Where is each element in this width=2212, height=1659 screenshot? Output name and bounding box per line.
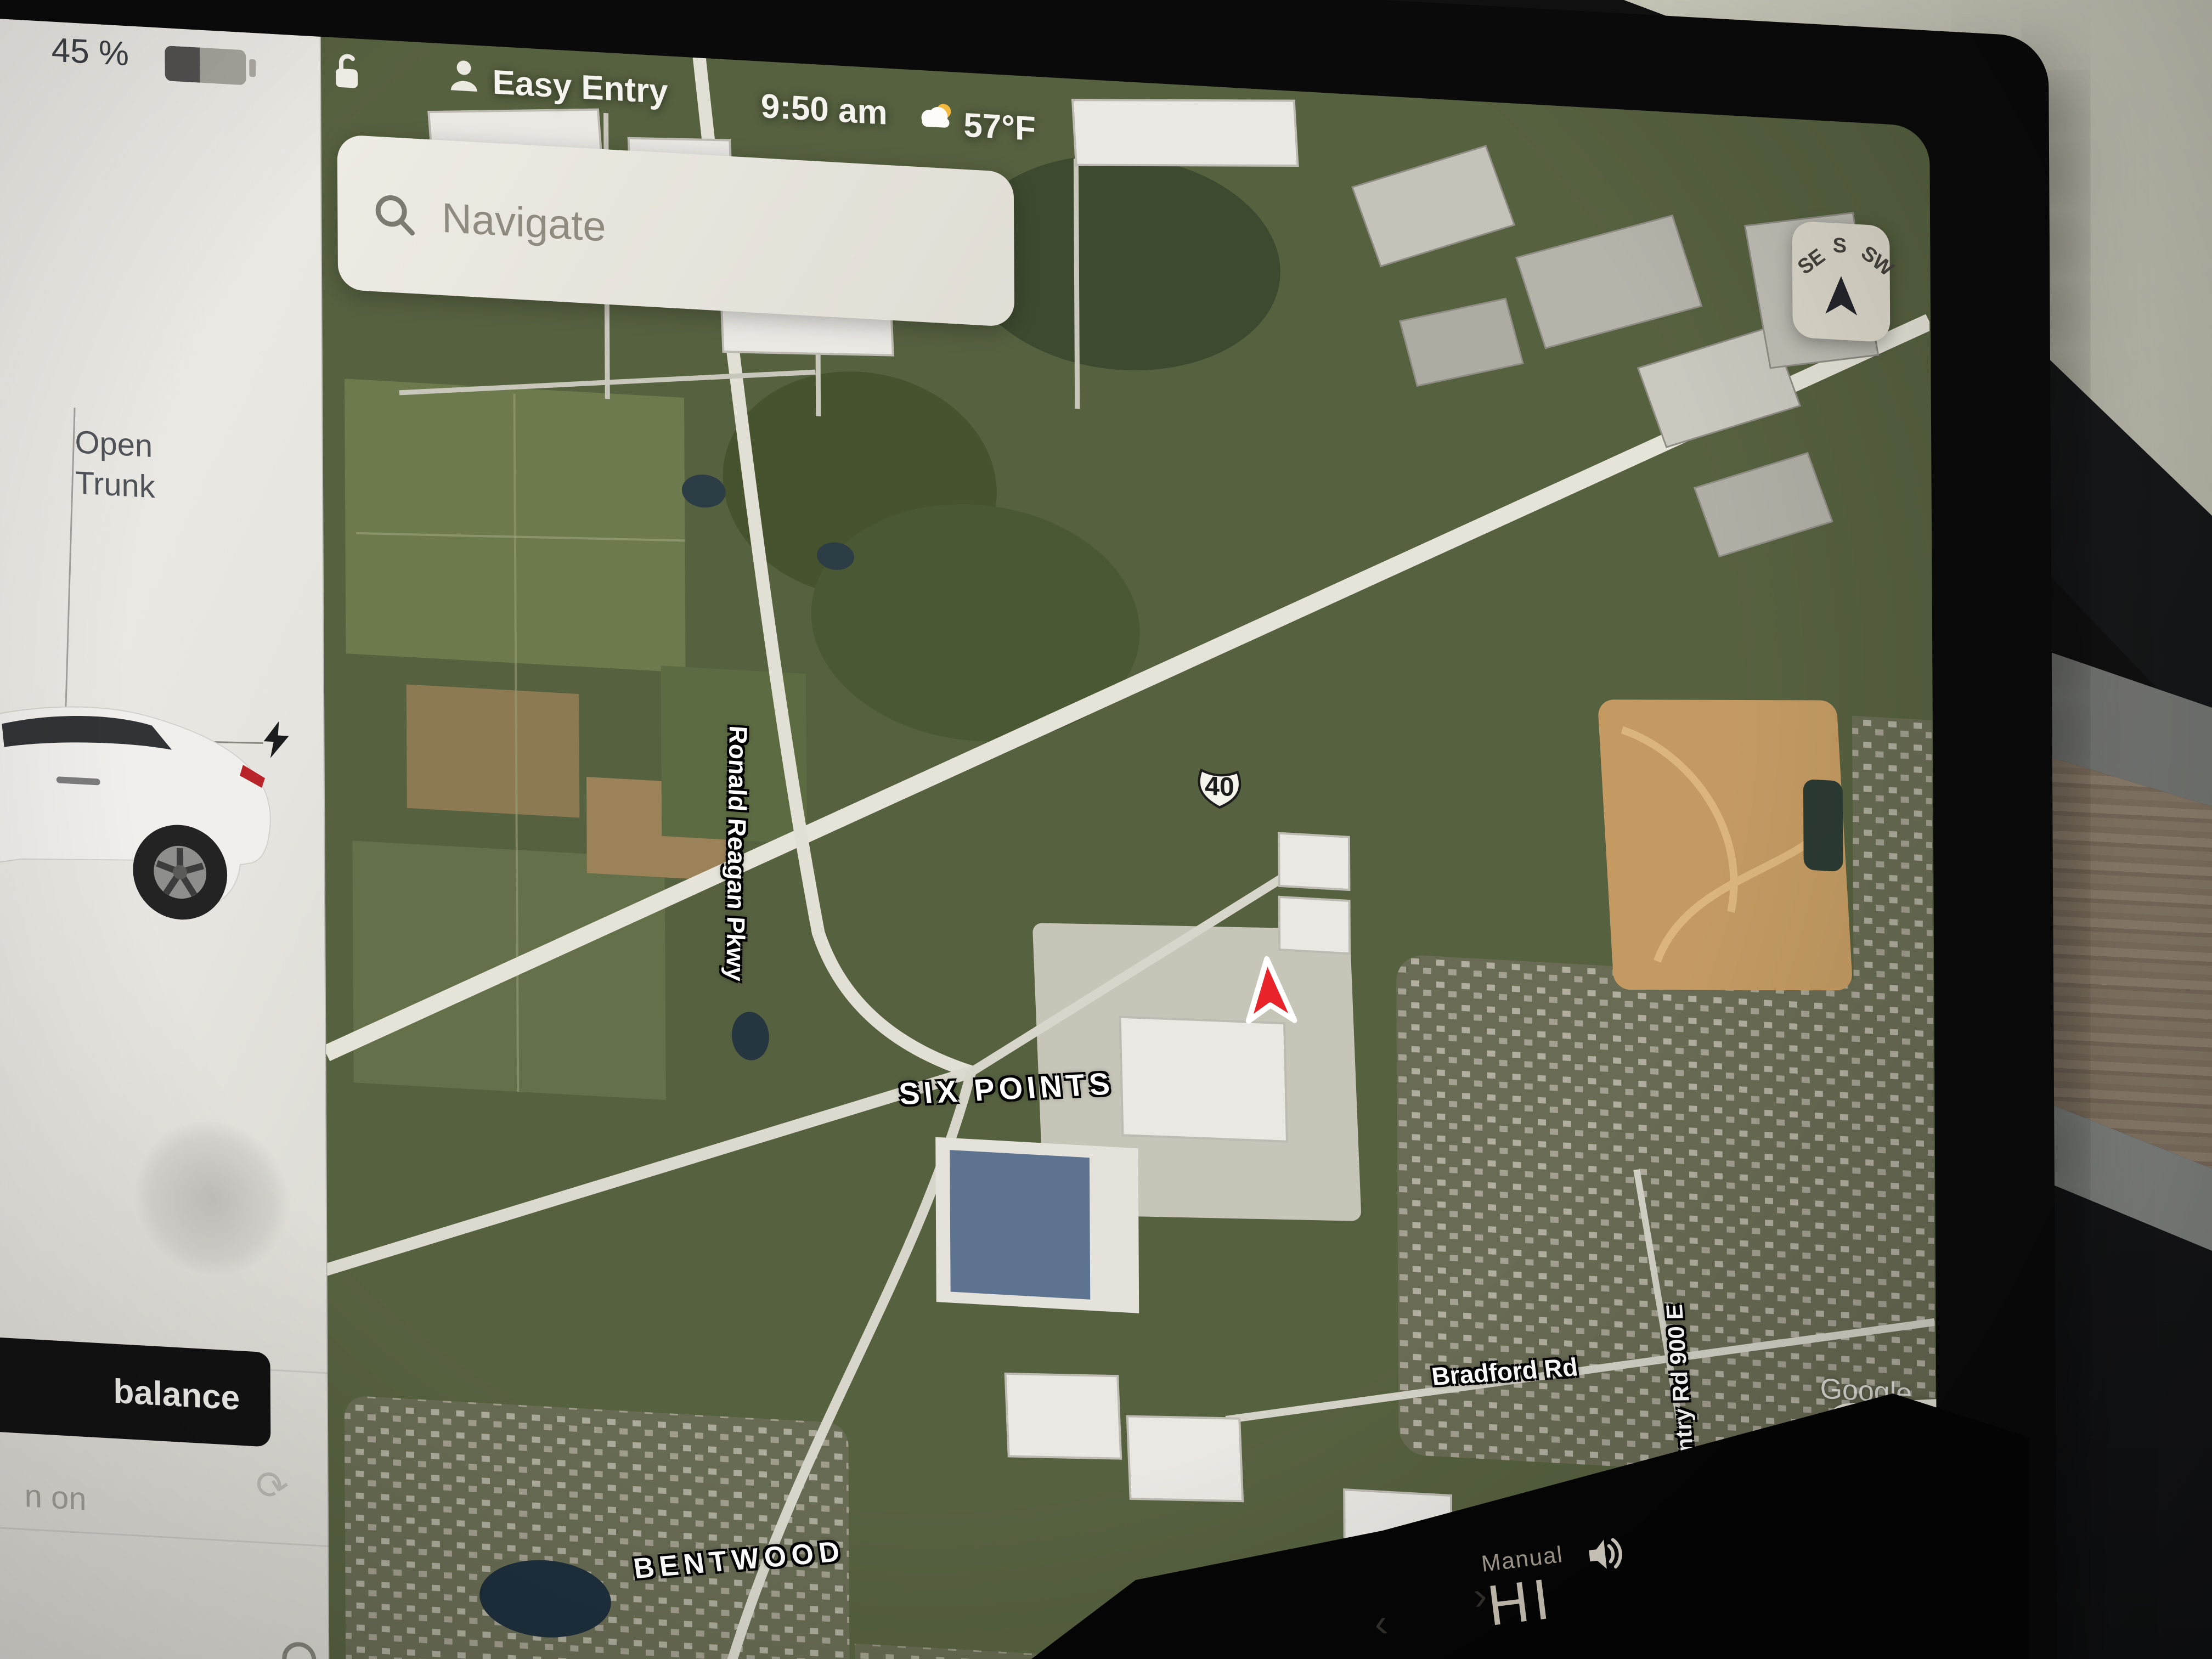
open-trunk-button[interactable]: Open Trunk [75,422,217,511]
vehicle-reflection [135,1117,289,1279]
vehicle-status-panel: 45 % Open Trunk [0,14,330,1659]
battery-tip [249,59,256,77]
driver-profile-icon [447,58,481,93]
volume-speaker-icon[interactable] [1583,1534,1628,1575]
compass-heading-arrow-icon [1825,275,1857,315]
outside-temperature[interactable]: 57°F [963,106,1036,149]
lock-unlocked-icon[interactable] [329,48,363,94]
battery-icon [165,46,246,85]
road-label-ronald-reagan-pkwy: Ronald Reagan Pkwy [720,725,753,983]
vehicle-render [0,681,306,929]
compass-se: SE [1793,245,1830,280]
tesla-touchscreen: Easy Entry 9:50 am 57°F Navigate SE S SW [0,0,2058,1659]
climate-fan-speed[interactable]: HI [1484,1566,1558,1639]
compass-s: S [1833,234,1847,258]
route-40-shield: 40 [1195,765,1244,811]
navigate-placeholder: Navigate [442,194,606,251]
balance-tooltip: balance [0,1336,270,1447]
route-shield-number: 40 [1205,771,1234,802]
panel-search-icon[interactable] [277,1636,332,1659]
battery-percent: 45 % [52,30,129,74]
cloud-sun-icon [916,101,955,132]
clock: 9:50 am [761,87,888,133]
refresh-icon: ⟳ [252,1459,292,1512]
search-icon [374,193,416,238]
partial-setting-text: n on [25,1477,87,1517]
compass-widget[interactable]: SE S SW [1792,221,1891,342]
photo-of-tesla-screen: Easy Entry 9:50 am 57°F Navigate SE S SW [0,0,2212,1659]
vehicle-location-arrow [1239,955,1299,1028]
